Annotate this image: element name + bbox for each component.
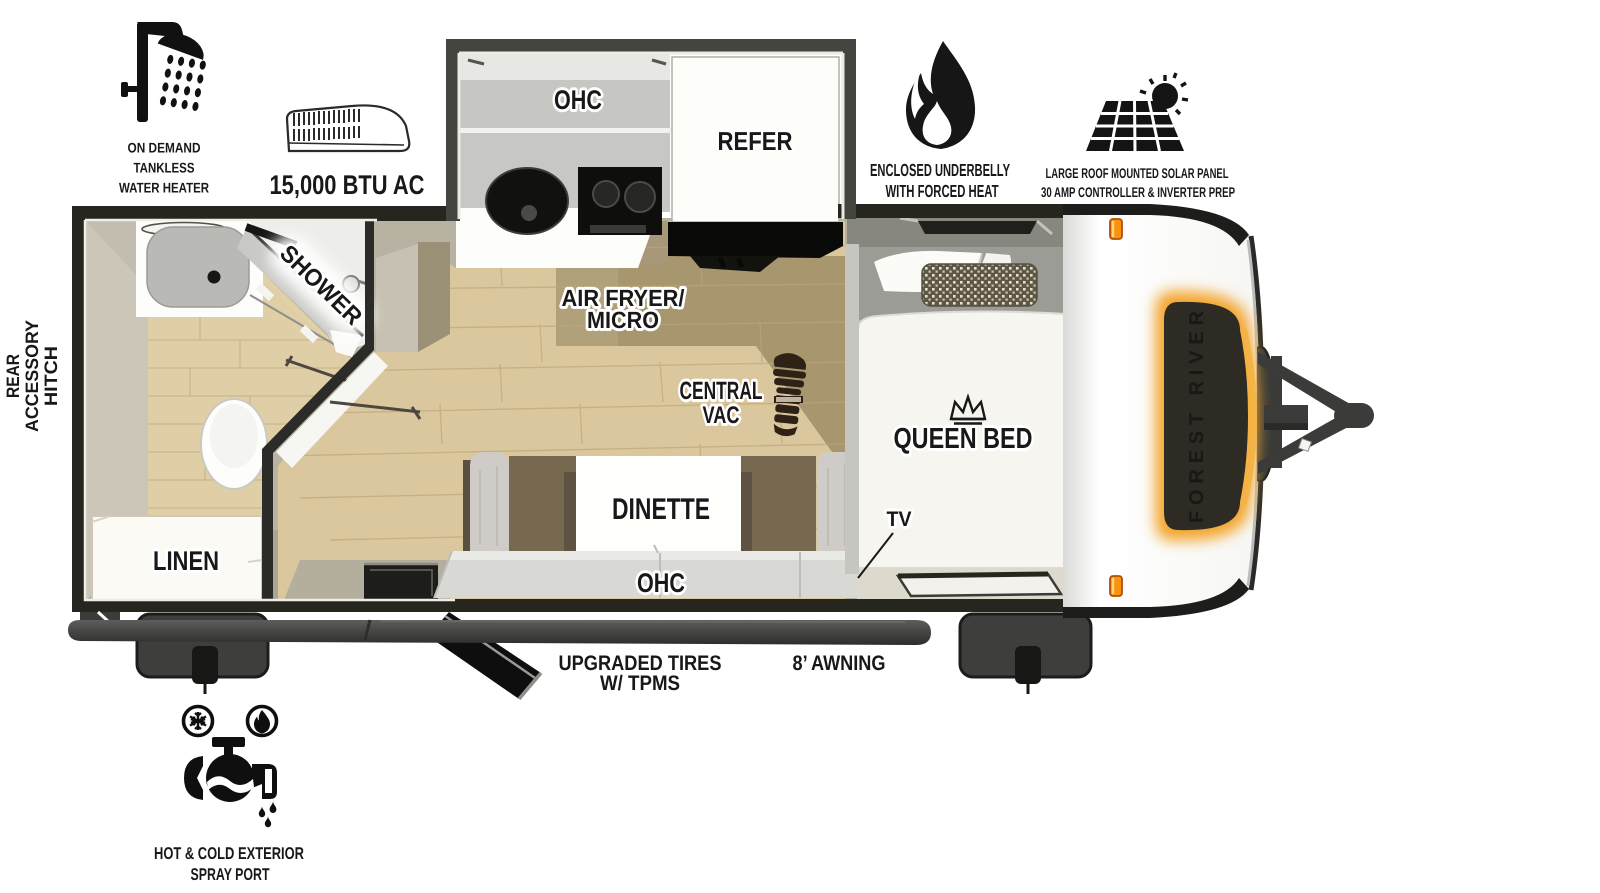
- svg-text:MICRO: MICRO: [587, 307, 659, 333]
- svg-text:TANKLESS: TANKLESS: [134, 160, 195, 176]
- svg-text:LARGE ROOF MOUNTED SOLAR PANEL: LARGE ROOF MOUNTED SOLAR PANEL: [1046, 165, 1229, 181]
- svg-text:CENTRAL: CENTRAL: [680, 377, 763, 405]
- svg-text:TV: TV: [887, 508, 912, 531]
- svg-text:HOT & COLD EXTERIOR: HOT & COLD EXTERIOR: [154, 844, 304, 863]
- svg-text:8’ AWNING: 8’ AWNING: [793, 652, 886, 675]
- svg-text:LINEN: LINEN: [153, 546, 219, 576]
- svg-text:ENCLOSED UNDERBELLY: ENCLOSED UNDERBELLY: [870, 160, 1010, 180]
- svg-text:QUEEN BED: QUEEN BED: [894, 423, 1033, 455]
- svg-text:30 AMP CONTROLLER & INVERTER P: 30 AMP CONTROLLER & INVERTER PREP: [1041, 184, 1235, 200]
- svg-text:ON DEMAND: ON DEMAND: [128, 140, 201, 156]
- svg-text:ACCESSORY: ACCESSORY: [22, 320, 42, 432]
- svg-text:W/ TPMS: W/ TPMS: [600, 672, 680, 695]
- svg-text:SPRAY PORT: SPRAY PORT: [191, 865, 270, 884]
- svg-text:REAR: REAR: [3, 354, 23, 398]
- svg-text:REFER: REFER: [718, 126, 793, 156]
- svg-text:WITH FORCED HEAT: WITH FORCED HEAT: [886, 181, 999, 201]
- svg-text:VAC: VAC: [703, 402, 740, 429]
- svg-text:FOREST RIVER: FOREST RIVER: [1186, 310, 1208, 523]
- svg-text:WATER HEATER: WATER HEATER: [119, 180, 209, 196]
- svg-text:15,000 BTU AC: 15,000 BTU AC: [270, 170, 425, 200]
- svg-text:HITCH: HITCH: [41, 346, 61, 406]
- svg-text:OHC: OHC: [554, 85, 602, 115]
- svg-text:DINETTE: DINETTE: [612, 493, 710, 526]
- svg-text:OHC: OHC: [637, 568, 685, 598]
